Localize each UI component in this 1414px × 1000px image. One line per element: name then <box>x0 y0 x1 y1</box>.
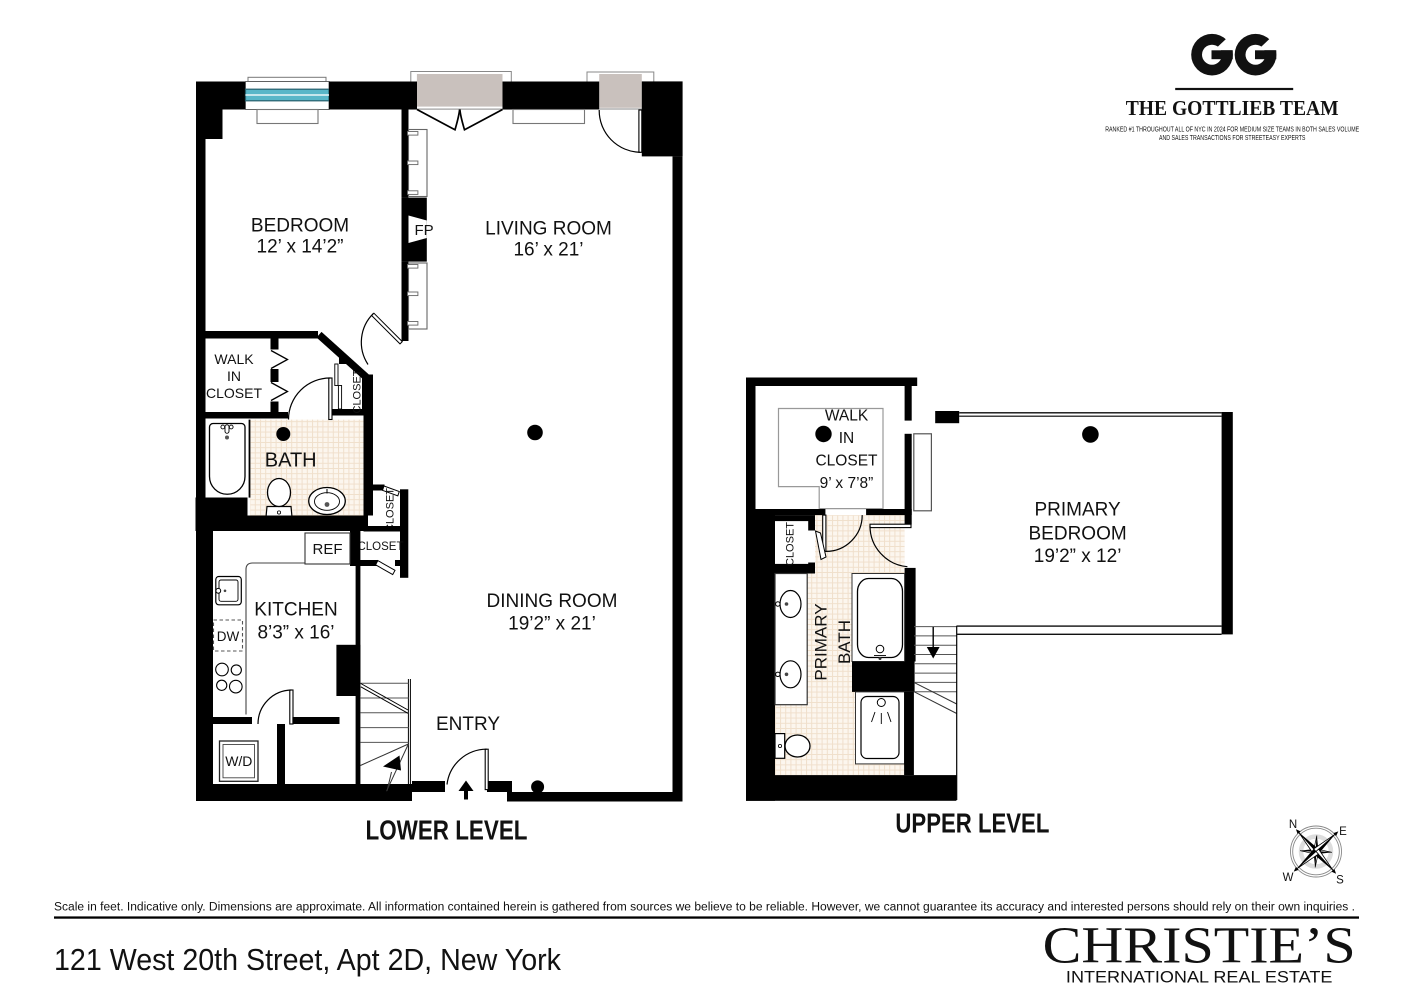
svg-text:W/D: W/D <box>225 753 252 769</box>
svg-text:DW: DW <box>217 629 240 644</box>
svg-text:CLOSET: CLOSET <box>357 541 403 553</box>
svg-text:CLOSET: CLOSET <box>352 369 364 413</box>
svg-text:12’ x 14’2”: 12’ x 14’2” <box>257 237 344 258</box>
svg-text:BATH: BATH <box>835 620 854 664</box>
svg-text:BEDROOM: BEDROOM <box>251 216 349 237</box>
svg-text:PRIMARY: PRIMARY <box>1034 500 1121 521</box>
svg-text:KITCHEN: KITCHEN <box>254 600 337 621</box>
svg-text:UPPER LEVEL: UPPER LEVEL <box>895 808 1049 839</box>
svg-text:CLOSET: CLOSET <box>785 522 797 566</box>
svg-text:CLOSET: CLOSET <box>206 385 262 401</box>
svg-text:CLOSET: CLOSET <box>385 488 397 532</box>
svg-text:BATH: BATH <box>265 450 317 472</box>
svg-text:CHRISTIE’S: CHRISTIE’S <box>1043 918 1356 975</box>
svg-text:FP: FP <box>415 222 434 239</box>
svg-text:W: W <box>1283 872 1294 884</box>
svg-text:S: S <box>1336 875 1344 887</box>
svg-text:INTERNATIONAL REAL ESTATE: INTERNATIONAL REAL ESTATE <box>1066 968 1333 987</box>
svg-text:CLOSET: CLOSET <box>815 453 878 470</box>
svg-text:N: N <box>1289 819 1297 831</box>
svg-text:AND SALES TRANSACTIONS FOR STR: AND SALES TRANSACTIONS FOR STREETEASY EX… <box>1159 133 1306 142</box>
svg-text:E: E <box>1339 826 1347 838</box>
svg-text:19’2” x 12’: 19’2” x 12’ <box>1034 546 1122 567</box>
svg-text:9’ x 7’8”: 9’ x 7’8” <box>820 475 874 492</box>
svg-text:ENTRY: ENTRY <box>436 714 500 735</box>
svg-text:IN: IN <box>839 430 855 447</box>
svg-text:LOWER LEVEL: LOWER LEVEL <box>366 815 528 846</box>
svg-text:WALK: WALK <box>825 408 869 425</box>
svg-text:IN: IN <box>227 368 241 384</box>
svg-text:19’2” x 21’: 19’2” x 21’ <box>508 614 596 635</box>
svg-text:PRIMARY: PRIMARY <box>812 603 831 680</box>
svg-text:BEDROOM: BEDROOM <box>1029 524 1127 545</box>
svg-text:REF: REF <box>313 541 343 558</box>
svg-text:Scale in feet. Indicative only: Scale in feet. Indicative only. Dimensio… <box>54 902 1355 914</box>
svg-text:LIVING ROOM: LIVING ROOM <box>485 219 612 240</box>
svg-text:THE GOTTLIEB TEAM: THE GOTTLIEB TEAM <box>1126 96 1339 120</box>
svg-text:16’ x 21’: 16’ x 21’ <box>513 240 583 261</box>
svg-text:8’3” x 16’: 8’3” x 16’ <box>257 623 334 644</box>
svg-text:WALK: WALK <box>214 351 254 367</box>
svg-text:121 West 20th Street, Apt 2D,: 121 West 20th Street, Apt 2D, New York <box>54 943 562 977</box>
svg-text:DINING ROOM: DINING ROOM <box>487 591 618 612</box>
